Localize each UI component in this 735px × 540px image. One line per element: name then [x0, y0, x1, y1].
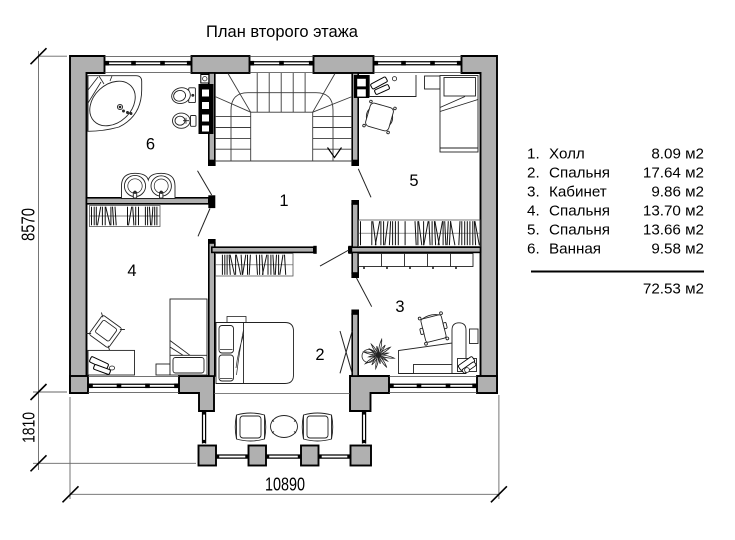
svg-text:4.: 4. — [527, 202, 540, 219]
svg-text:2: 2 — [315, 346, 324, 364]
svg-text:1: 1 — [279, 192, 288, 210]
svg-text:8570: 8570 — [19, 208, 39, 241]
svg-text:72.53 м2: 72.53 м2 — [643, 281, 704, 298]
svg-text:13.70 м2: 13.70 м2 — [643, 202, 704, 219]
svg-text:План второго этажа: План второго этажа — [206, 23, 359, 41]
svg-text:1.: 1. — [527, 145, 540, 162]
svg-text:Ванная: Ванная — [549, 240, 601, 257]
svg-text:13.66 м2: 13.66 м2 — [643, 221, 704, 238]
svg-text:Спальня: Спальня — [549, 164, 610, 181]
svg-text:6.: 6. — [527, 240, 540, 257]
svg-text:1810: 1810 — [19, 412, 39, 443]
svg-text:Кабинет: Кабинет — [549, 183, 607, 200]
svg-text:3.: 3. — [527, 183, 540, 200]
svg-text:5.: 5. — [527, 221, 540, 238]
svg-text:4: 4 — [127, 262, 136, 280]
svg-text:10890: 10890 — [265, 475, 305, 495]
svg-text:3: 3 — [395, 298, 404, 316]
svg-text:Холл: Холл — [549, 145, 585, 162]
svg-text:9.58 м2: 9.58 м2 — [651, 240, 704, 257]
svg-text:Спальня: Спальня — [549, 221, 610, 238]
svg-text:6: 6 — [146, 136, 155, 154]
svg-text:17.64 м2: 17.64 м2 — [643, 164, 704, 181]
svg-text:5: 5 — [409, 172, 418, 190]
svg-text:9.86 м2: 9.86 м2 — [651, 183, 704, 200]
svg-text:8.09 м2: 8.09 м2 — [651, 145, 704, 162]
svg-text:2.: 2. — [527, 164, 540, 181]
svg-text:Спальня: Спальня — [549, 202, 610, 219]
